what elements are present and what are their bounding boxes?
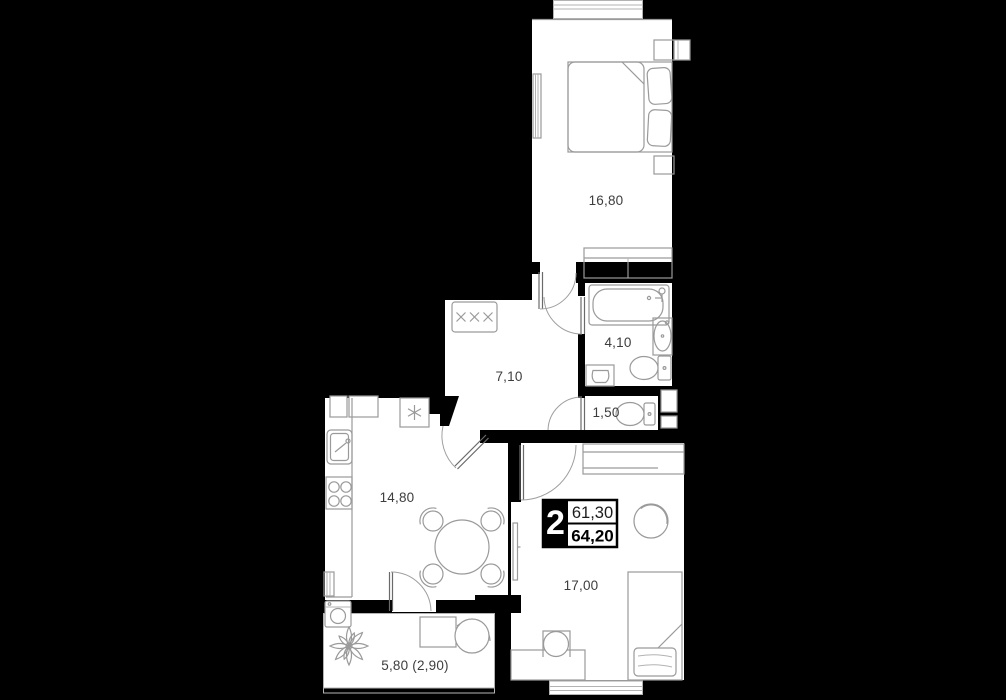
dining-table bbox=[435, 520, 489, 574]
wc-area-label: 1,50 bbox=[592, 405, 619, 420]
badge-living-area: 61,30 bbox=[572, 504, 613, 522]
badge-rooms-count: 2 bbox=[546, 504, 565, 542]
hallway-area-label: 7,10 bbox=[495, 369, 522, 384]
bedroom-area-label: 16,80 bbox=[589, 193, 624, 208]
vent-shaft bbox=[661, 390, 677, 412]
fridge bbox=[400, 398, 429, 427]
balcony-chair bbox=[455, 619, 490, 653]
wall bbox=[643, 680, 686, 696]
wall bbox=[578, 386, 672, 396]
toilet-bathroom bbox=[630, 356, 671, 380]
wall bbox=[520, 19, 532, 274]
wall bbox=[508, 443, 521, 502]
wall bbox=[508, 680, 549, 696]
room-living-window-bay bbox=[549, 681, 643, 695]
kitchen-area-label: 14,80 bbox=[380, 490, 415, 505]
bathroom-area-label: 4,10 bbox=[604, 335, 631, 350]
vent-shaft bbox=[661, 416, 677, 428]
wall bbox=[684, 430, 696, 696]
ac-basket bbox=[674, 40, 690, 60]
floor-plan: 16,80 4,10 7,10 1,50 14,80 17,00 5,80 (2… bbox=[0, 0, 1006, 700]
wall bbox=[436, 600, 521, 613]
balcony-area-label: 5,80 (2,90) bbox=[381, 658, 449, 673]
wall bbox=[508, 430, 684, 443]
living-area-label: 17,00 bbox=[564, 578, 599, 593]
desk bbox=[511, 650, 585, 680]
bedroom-door-opening bbox=[540, 262, 576, 274]
washing-machine bbox=[325, 601, 351, 627]
wall bbox=[520, 262, 540, 274]
wall bbox=[440, 286, 532, 300]
unit-info-badge: 2 61,30 64,20 bbox=[543, 500, 617, 547]
room-bedroom bbox=[532, 19, 672, 262]
room-living bbox=[511, 443, 684, 680]
vent-shaft bbox=[349, 396, 378, 417]
wall bbox=[578, 283, 585, 296]
badge-total-area: 64,20 bbox=[571, 527, 614, 546]
vent-shaft bbox=[330, 396, 347, 417]
toilet-wc bbox=[616, 403, 655, 426]
wall bbox=[672, 277, 690, 387]
